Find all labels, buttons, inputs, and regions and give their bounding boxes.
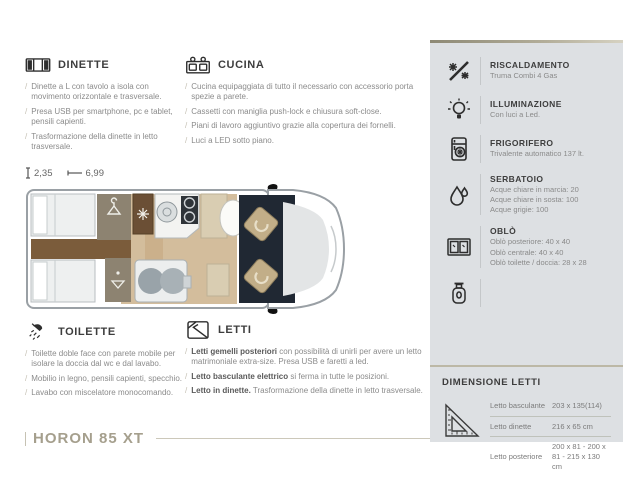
dinette-list: /Dinette a L con tavolo a isola con movi… [25,82,177,152]
kitchen-icon [185,55,211,75]
list-item-lead: Letti gemelli posteriori [191,347,277,356]
spec-serbatoio: SERBATOIO Acque chiare in marcia: 20 Acq… [442,174,611,215]
floorplan [25,184,423,314]
spec-text: SERBATOIO Acque chiare in marcia: 20 Acq… [490,174,579,215]
bed-value: 203 x 135(114) [552,401,611,411]
bullet-slash-icon: / [25,132,27,153]
bed-dimensions-table: Letto basculante 203 x 135(114) Letto di… [490,396,611,477]
length-dimension: 6,99 [67,168,105,179]
spec-divider [480,96,481,124]
bullet-slash-icon: / [25,349,27,370]
list-item-text: Dinette a L con tavolo a isola con movim… [31,82,177,103]
spec-line: Oblò centrale: 40 x 40 [490,248,587,258]
list-item: /Lavabo con miscelatore monocomando. [25,388,183,398]
section-cucina-header: CUCINA [185,55,422,75]
list-item: /Dinette a L con tavolo a isola con movi… [25,82,177,103]
bed-dimensions-title: DIMENSIONE LETTI [442,377,611,388]
spec-oblo: OBLÒ Oblò posteriore: 40 x 40 Oblò centr… [442,226,611,267]
length-arrow-icon [67,169,83,177]
height-ruler-icon [25,167,31,179]
bullet-slash-icon: / [25,107,27,128]
spec-sheet-page: DINETTE /Dinette a L con tavolo a isola … [0,0,640,480]
bed-value: 216 x 65 cm [552,422,611,432]
list-item: /Mobilio in legno, pensili capienti, spe… [25,374,183,384]
toilette-list: /Toilette doble face con parete mobile p… [25,349,183,399]
kitchen-counter [155,194,199,238]
twin-bed-bottom [31,260,95,302]
list-item-text: Letto basculante elettrico si ferma in t… [191,372,389,382]
section-dinette: DINETTE /Dinette a L con tavolo a isola … [25,55,177,156]
list-item-text: Toilette doble face con parete mobile pe… [31,349,183,370]
spec-title: OBLÒ [490,226,587,236]
section-dinette-header: DINETTE [25,55,177,75]
bullet-slash-icon: / [185,107,187,117]
section-toilette-header: TOILETTE [25,322,183,342]
length-value: 6,99 [86,168,105,179]
list-item-text: Trasformazione della dinette in letto tr… [31,132,177,153]
fridge-icon [442,135,476,163]
model-tick [25,432,26,446]
spec-line: Acque chiare in sosta: 100 [490,195,579,205]
spec-line: Acque chiare in marcia: 20 [490,185,579,195]
spec-sidebar: RISCALDAMENTO Truma Combi 4 Gas ILLUMINA… [430,40,623,442]
bullet-slash-icon: / [25,374,27,384]
list-item-text: Cassetti con maniglia push-lock e chiusu… [191,107,381,117]
section-letti: LETTI /Letti gemelli posteriori con poss… [185,320,423,401]
spec-title: SERBATOIO [490,174,579,184]
list-item-text: Letti gemelli posteriori con possibilità… [191,347,423,368]
floorplan-dimensions: 2,35 6,99 [25,167,104,179]
spec-line: Oblò posteriore: 40 x 40 [490,237,587,247]
shower-icon [25,322,51,342]
bed-dimensions-panel: DIMENSIONE LETTI Letto basculante 203 x … [430,367,623,480]
table-row: Letto basculante 203 x 135(114) [490,396,611,417]
letti-list: /Letti gemelli posteriori con possibilit… [185,347,423,397]
spec-text: FRIGORIFERO Trivalente automatico 137 lt… [490,135,584,163]
list-item-text: Letto in dinette. Trasformazione della d… [191,386,423,396]
list-item: /Letto basculante elettrico si ferma in … [185,372,423,382]
table-row: Letto dinette 216 x 65 cm [490,417,611,438]
list-item: /Luci a LED sotto piano. [185,136,422,146]
bullet-slash-icon: / [185,386,187,396]
set-square-icon [442,396,482,477]
spec-title: ILLUMINAZIONE [490,99,562,109]
list-item: /Trasformazione della dinette in letto t… [25,132,177,153]
wardrobe [97,194,131,240]
bed-value: 200 x 81 - 200 x 81 - 215 x 130 cm [552,442,611,471]
spec-text: RISCALDAMENTO Truma Combi 4 Gas [490,57,570,85]
height-value: 2,35 [34,168,53,179]
model-name: HORON 85 XT [33,430,144,447]
table-row: Letto posteriore 200 x 81 - 200 x 81 - 2… [490,437,611,476]
bullet-slash-icon: / [185,372,187,382]
bullet-slash-icon: / [25,388,27,398]
bed-label: Letto posteriore [490,452,552,461]
floorplan-drawing [25,184,423,314]
section-cucina: CUCINA /Cucina equipaggiata di tutto il … [185,55,422,150]
spec-line: Trivalente automatico 137 lt. [490,149,584,159]
list-item: /Letti gemelli posteriori con possibilit… [185,347,423,368]
list-item: /Letto in dinette. Trasformazione della … [185,386,423,396]
spec-divider [480,279,481,307]
spec-title: FRIGORIFERO [490,138,584,148]
list-item-text: Mobilio in legno, pensili capienti, spec… [31,374,182,384]
bed-label: Letto dinette [490,422,552,431]
list-item-text: Piani di lavoro aggiuntivo grazie alla c… [191,121,396,131]
section-letti-title: LETTI [218,324,252,336]
bullet-slash-icon: / [185,121,187,131]
list-item-text: Lavabo con miscelatore monocomando. [31,388,173,398]
spec-text: OBLÒ Oblò posteriore: 40 x 40 Oblò centr… [490,226,587,267]
cucina-list: /Cucina equipaggiata di tutto il necessa… [185,82,422,146]
spec-divider [480,135,481,163]
list-item: /Piani di lavoro aggiuntivo grazie alla … [185,121,422,131]
section-cucina-title: CUCINA [218,59,264,71]
list-item: /Cucina equipaggiata di tutto il necessa… [185,82,422,103]
spec-divider [480,174,481,215]
hob [181,196,198,224]
spec-frigorifero: FRIGORIFERO Trivalente automatico 137 lt… [442,135,611,163]
list-item-lead: Letto in dinette. [191,386,251,395]
list-item-rest: si ferma in tutte le posizioni. [288,372,389,381]
section-toilette-title: TOILETTE [58,326,116,338]
water-drop-icon [442,174,476,215]
corridor-floor [31,239,131,259]
spec-riscaldamento: RISCALDAMENTO Truma Combi 4 Gas [442,57,611,85]
sink [157,202,177,222]
spec-line: Truma Combi 4 Gas [490,71,570,81]
spec-divider [480,226,481,267]
twin-bed-top [31,194,95,236]
heating-icon [442,57,476,85]
spec-line: Con luci a Led. [490,110,562,120]
toilette-block [105,258,131,302]
fridge [133,194,153,234]
list-item-text: Luci a LED sotto piano. [191,136,274,146]
list-item-rest: Trasformazione della dinette in letto tr… [251,386,423,395]
bed-icon [185,320,211,340]
list-item-lead: Letto basculante elettrico [191,372,288,381]
section-toilette: TOILETTE /Toilette doble face con parete… [25,322,183,403]
bullet-slash-icon: / [185,347,187,368]
skylight-icon [442,226,476,267]
list-item: /Cassetti con maniglia push-lock e chius… [185,107,422,117]
list-item: /Toilette doble face con parete mobile p… [25,349,183,370]
spec-title: RISCALDAMENTO [490,60,570,70]
spec-text: ILLUMINAZIONE Con luci a Led. [490,96,562,124]
list-item-text: Presa USB per smartphone, pc e tablet, p… [31,107,177,128]
dinette-bench [207,264,229,296]
bullet-slash-icon: / [185,82,187,103]
section-letti-header: LETTI [185,320,423,340]
section-dinette-title: DINETTE [58,59,109,71]
list-item: /Presa USB per smartphone, pc e tablet, … [25,107,177,128]
bullet-slash-icon: / [185,136,187,146]
dinette-icon [25,55,51,75]
bathroom [135,260,191,302]
spec-divider [480,57,481,85]
bed-dimensions-body: Letto basculante 203 x 135(114) Letto di… [442,396,611,477]
bed-label: Letto basculante [490,401,552,410]
spec-line: Oblò toilette / doccia: 28 x 28 [490,258,587,268]
sidebar-specs: RISCALDAMENTO Truma Combi 4 Gas ILLUMINA… [430,43,623,307]
bullet-slash-icon: / [25,82,27,103]
height-dimension: 2,35 [25,167,53,179]
lightbulb-icon [442,96,476,124]
gas-bottle-icon [442,279,476,307]
spec-illuminazione: ILLUMINAZIONE Con luci a Led. [442,96,611,124]
list-item-text: Cucina equipaggiata di tutto il necessar… [191,82,422,103]
spec-line: Acque grigie: 100 [490,205,579,215]
spec-gas [442,279,611,307]
